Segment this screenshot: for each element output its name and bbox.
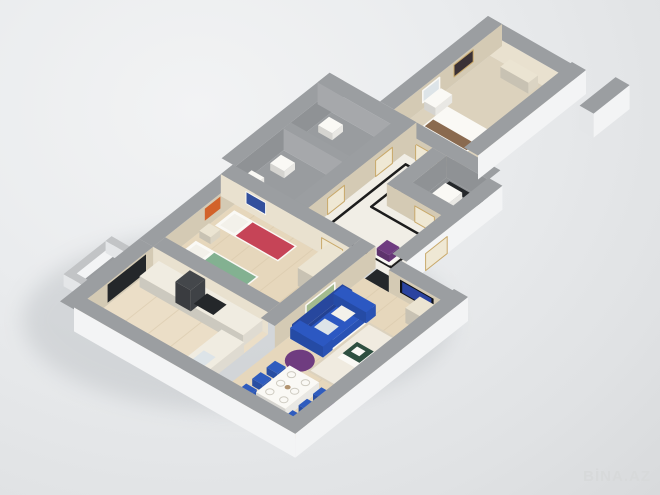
dinner-plate <box>287 372 295 378</box>
dinner-plate <box>280 397 288 403</box>
watermark: BİNA.AZ <box>583 468 651 485</box>
dinner-plate <box>266 389 274 395</box>
dinner-plate <box>301 380 309 386</box>
render-background: BİNA.AZ <box>0 0 660 495</box>
dinner-plate <box>290 388 298 394</box>
table-centerpiece <box>285 385 291 389</box>
floor-plan-render <box>0 0 660 495</box>
dinner-plate <box>276 380 284 386</box>
